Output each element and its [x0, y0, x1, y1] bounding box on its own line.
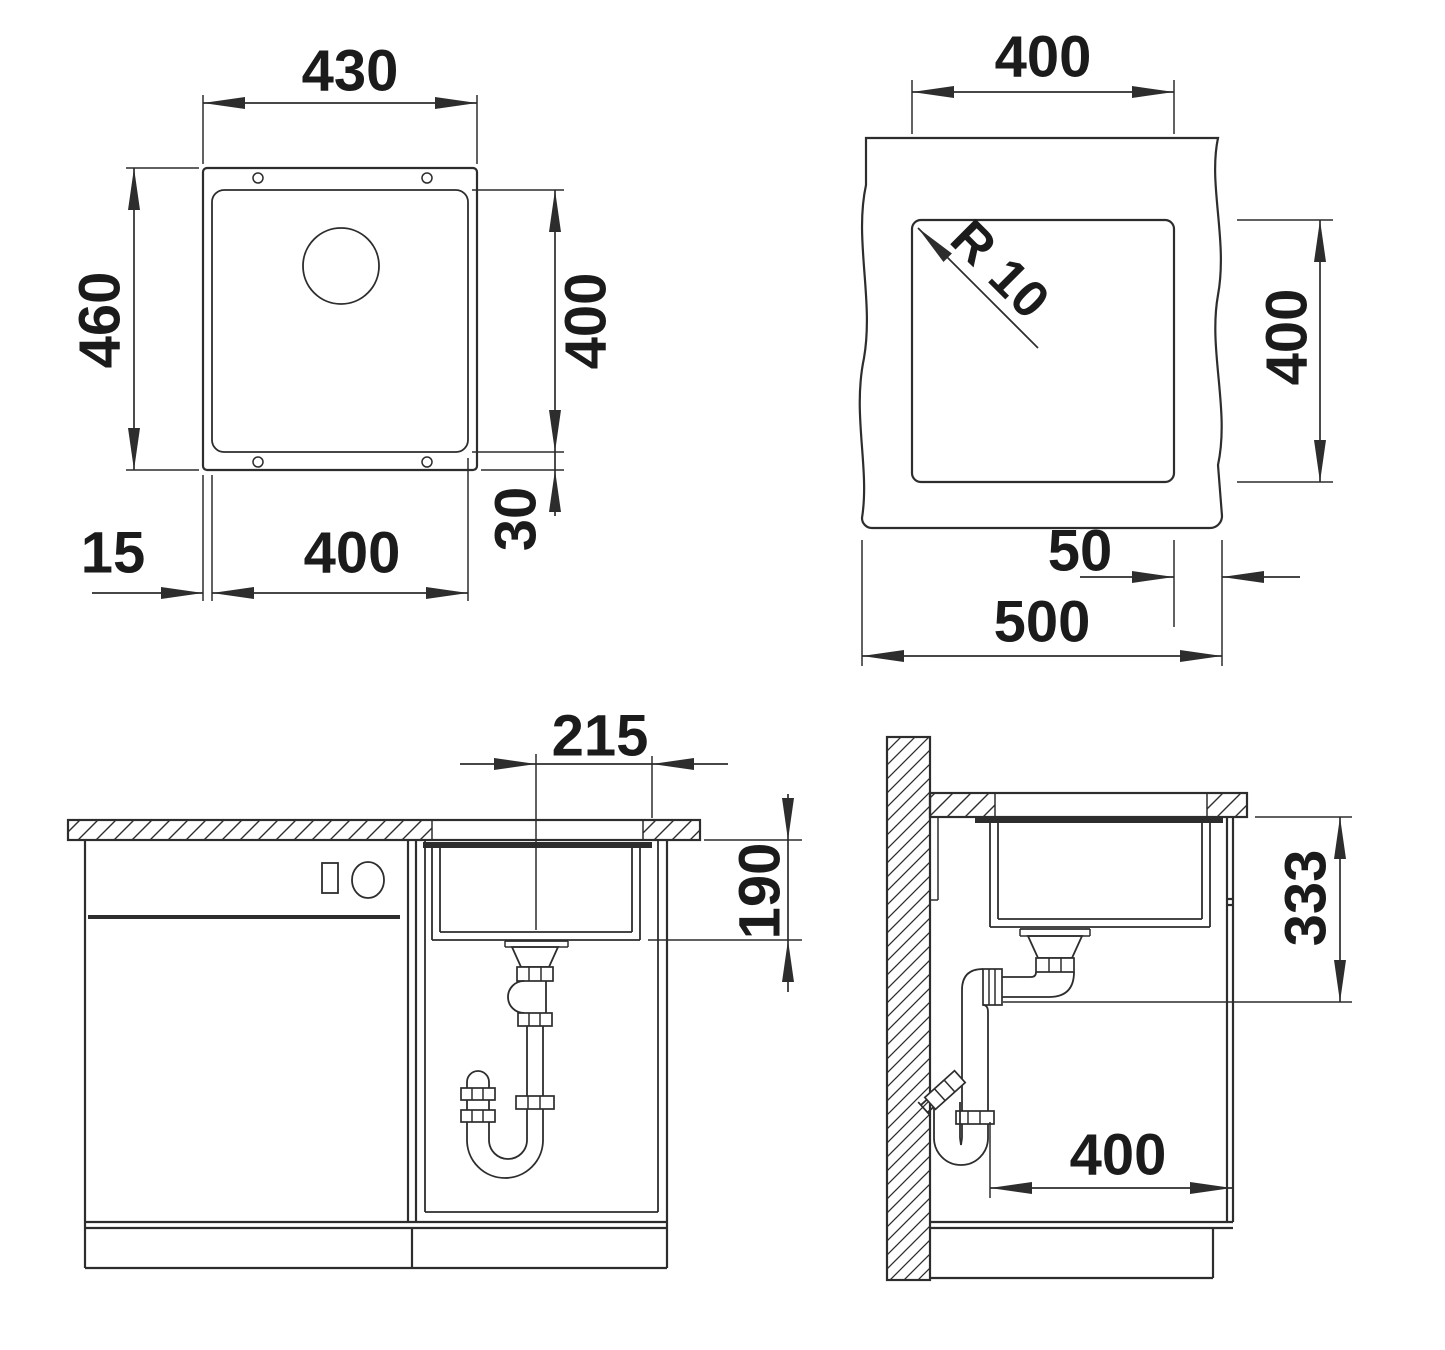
dim-label-overall-width: 430 [302, 39, 399, 104]
dim-outlet-height: 333 [1003, 817, 1352, 1002]
sink-outer-rim [203, 168, 477, 470]
dim-label-clearance-depth: 400 [1070, 1123, 1167, 1188]
technical-drawing-page: 430 460 400 30 15 400 [0, 0, 1445, 1350]
drain-hole [303, 228, 379, 304]
dim-label-worktop-width: 500 [994, 590, 1091, 655]
wall-hatch [887, 737, 930, 1280]
worktop-hatch-back [930, 793, 995, 817]
fixing-hole [253, 457, 263, 467]
worktop-piece [860, 138, 1222, 528]
dim-rim-bottom: 30 [481, 452, 564, 551]
view-front-section: 215 190 [68, 704, 802, 1269]
dim-rim-side-and-bowl-width: 15 400 [81, 458, 468, 601]
dim-label-corner-radius: R 10 [939, 209, 1061, 331]
sink-bowl-side-section [990, 823, 1210, 927]
drain-trap-front [461, 941, 568, 1178]
dim-overall-depth: 460 [68, 168, 200, 470]
dim-label-rim-side: 15 [81, 521, 146, 586]
worktop-hatch-right [643, 820, 700, 840]
dim-clearance-depth: 400 [990, 1122, 1232, 1198]
sink-flange [423, 842, 652, 848]
dim-label-cutout-width: 400 [995, 25, 1092, 90]
dim-label-bowl-width: 400 [304, 521, 401, 586]
sink-flange-side [975, 817, 1223, 823]
dim-label-bowl-depth: 400 [554, 273, 619, 370]
worktop-hatch-left [68, 820, 432, 840]
base-cabinet [85, 840, 667, 1268]
fixing-hole [422, 173, 432, 183]
dim-bowl-depth: 400 [472, 190, 619, 452]
view-side-section: 333 400 [887, 737, 1352, 1280]
corner-radius-callout: R 10 [918, 209, 1061, 348]
dim-worktop-width: 500 [862, 540, 1222, 666]
dim-overall-width: 430 [203, 39, 477, 165]
appliance-control-knob [352, 862, 384, 898]
dim-label-cutout-depth: 400 [1255, 289, 1320, 386]
cabinet-side [930, 817, 1233, 1278]
dim-label-edge-distance: 50 [1048, 519, 1113, 584]
dim-label-rim-bottom: 30 [484, 487, 549, 552]
dim-cutout-width: 400 [912, 25, 1174, 135]
fixing-hole [422, 457, 432, 467]
dim-label-overall-depth: 460 [68, 272, 133, 369]
dim-label-outlet-height: 333 [1274, 850, 1339, 947]
dim-label-bowl-inner-depth: 190 [728, 843, 793, 940]
sink-installation-drawing: 430 460 400 30 15 400 [0, 0, 1445, 1350]
drain-trap-side [918, 929, 1090, 1165]
dim-drain-offset: 215 [460, 704, 728, 819]
fixing-hole [253, 173, 263, 183]
dim-cutout-depth: 400 [1237, 220, 1333, 482]
appliance-control-button [322, 863, 338, 893]
view-sink-top: 430 460 400 30 15 400 [68, 39, 619, 602]
view-worktop-cutout: R 10 400 400 50 500 [860, 25, 1333, 667]
worktop-hatch-front [1207, 793, 1247, 817]
sink-bowl-outline [212, 190, 468, 452]
dim-label-drain-offset: 215 [552, 704, 649, 769]
